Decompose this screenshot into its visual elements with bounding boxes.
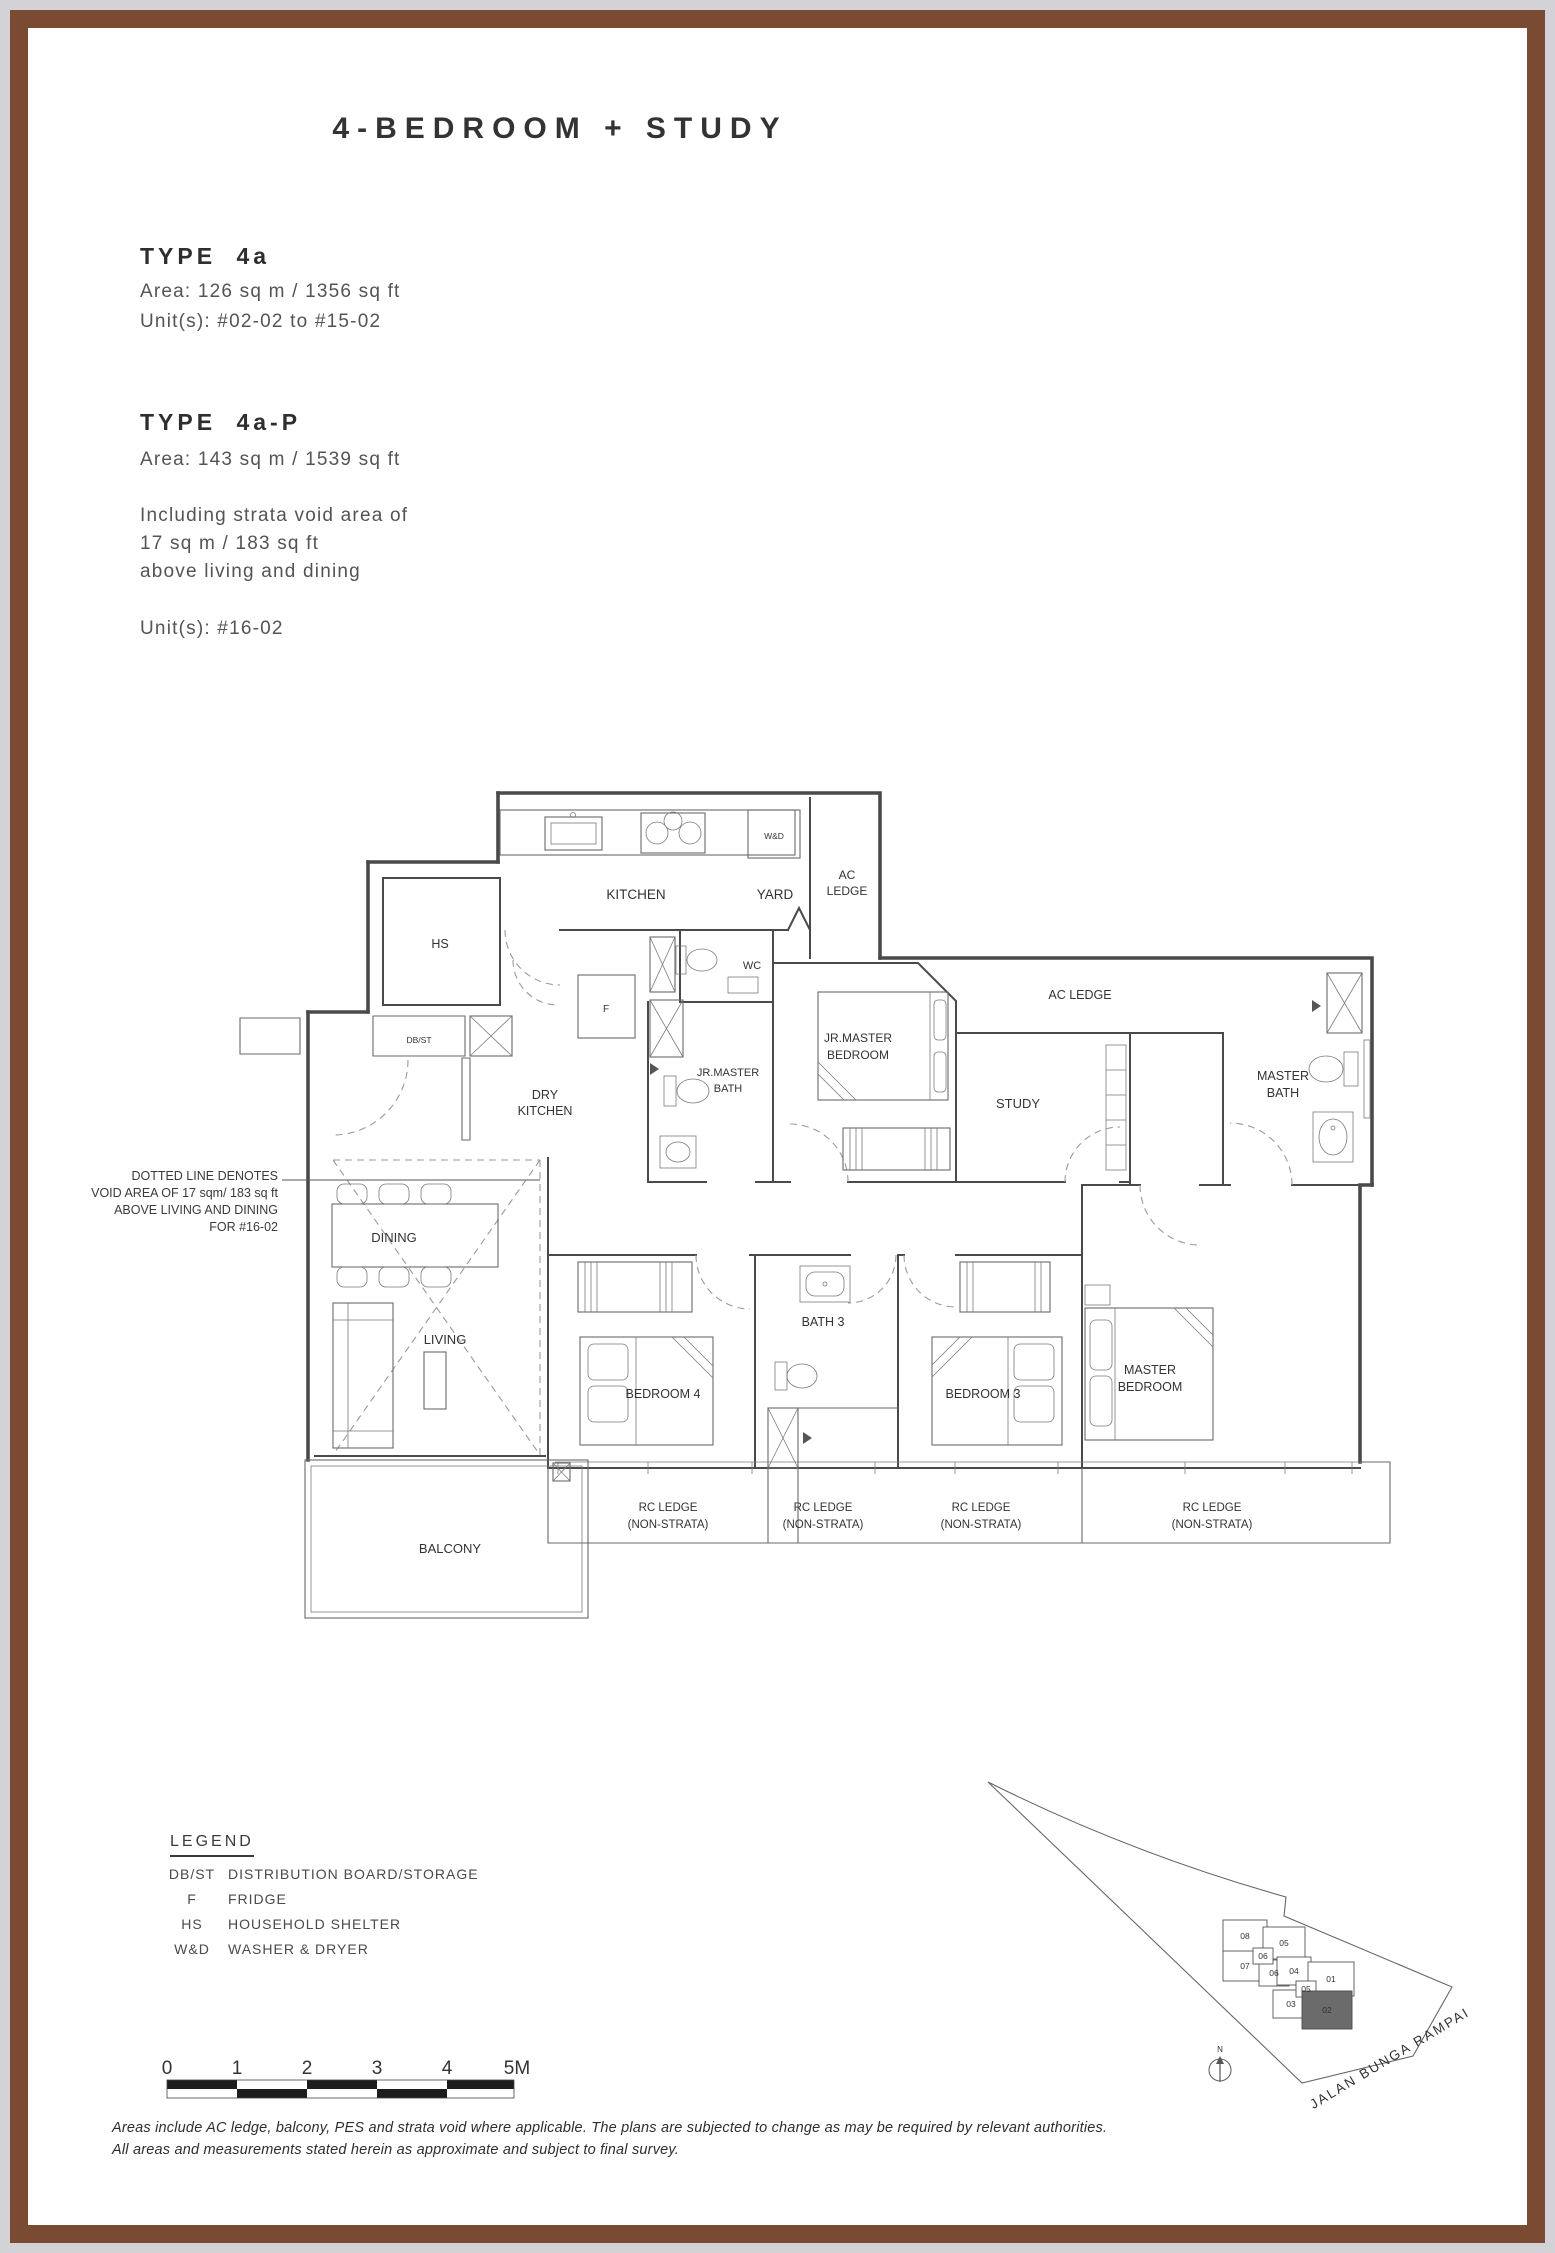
room-label-living: LIVING (424, 1332, 467, 1347)
site-block-02: 02 (1322, 2005, 1332, 2015)
legend-row-fridge: F FRIDGE (168, 1891, 479, 1907)
bathroom-fixtures (660, 946, 1358, 1390)
room-label-jr-master-bedroom-2: BEDROOM (827, 1048, 889, 1062)
site-block-04: 04 (1289, 1966, 1299, 1976)
legend-row-hs: HS HOUSEHOLD SHELTER (168, 1916, 479, 1932)
room-labels: KITCHEN YARD AC LEDGE W&D HS DB/ST DRY K… (371, 831, 1309, 1556)
site-block-05: 05 (1279, 1938, 1289, 1948)
room-label-jr-master-bath-1: JR.MASTER (697, 1067, 759, 1079)
legend-abbr: F (168, 1891, 216, 1907)
legend-abbr: W&D (168, 1941, 216, 1957)
room-label-kitchen: KITCHEN (606, 887, 665, 902)
north-arrow-icon: N (1209, 2045, 1231, 2082)
site-block-08: 08 (1240, 1931, 1250, 1941)
legend-abbr: HS (168, 1916, 216, 1932)
room-label-master-bedroom-1: MASTER (1124, 1363, 1176, 1377)
north-label: N (1217, 2045, 1223, 2054)
legend-desc: DISTRIBUTION BOARD/STORAGE (228, 1866, 479, 1882)
legend-title: LEGEND (170, 1833, 254, 1857)
legend: DB/ST DISTRIBUTION BOARD/STORAGE F FRIDG… (168, 1866, 479, 1966)
site-block-03: 03 (1286, 1999, 1296, 2009)
study-furniture (1106, 1045, 1126, 1170)
scale-tick-2: 2 (302, 2058, 313, 2079)
rc-ledge-label-4b: (NON-STRATA) (1172, 1519, 1253, 1531)
rc-ledge-and-windows (305, 1040, 1390, 1618)
room-label-wd: W&D (764, 831, 784, 841)
room-label-bedroom3: BEDROOM 3 (945, 1387, 1020, 1401)
disclaimer-line2: All areas and measurements stated herein… (112, 2142, 679, 2158)
legend-desc: HOUSEHOLD SHELTER (228, 1916, 401, 1932)
scale-bar: 0 1 2 3 4 5M (162, 2058, 530, 2098)
site-block-05b: 05 (1301, 1984, 1311, 1994)
rc-ledge-label-3a: RC LEDGE (952, 1502, 1011, 1514)
room-label-balcony: BALCONY (419, 1541, 481, 1556)
rc-ledge-label-2b: (NON-STRATA) (783, 1519, 864, 1531)
rc-ledge-label-2a: RC LEDGE (794, 1502, 853, 1514)
legend-desc: FRIDGE (228, 1891, 287, 1907)
living-dining-furniture (332, 1184, 498, 1448)
room-label-hs: HS (431, 937, 448, 951)
room-label-dry-kitchen-2: KITCHEN (518, 1104, 573, 1118)
floor-plan-interior-walls (240, 798, 1372, 1468)
legend-row-dbst: DB/ST DISTRIBUTION BOARD/STORAGE (168, 1866, 479, 1882)
scale-tick-5: 5M (504, 2058, 530, 2079)
rc-ledge-label-4a: RC LEDGE (1183, 1502, 1242, 1514)
room-label-ac-ledge-top-2: LEDGE (827, 884, 868, 898)
room-label-yard: YARD (757, 887, 794, 902)
rc-ledge-label-3b: (NON-STRATA) (941, 1519, 1022, 1531)
room-label-wc: WC (743, 960, 761, 972)
room-label-dbst: DB/ST (406, 1035, 431, 1045)
room-label-master-bath-2: BATH (1267, 1086, 1299, 1100)
room-label-bedroom4: BEDROOM 4 (625, 1387, 700, 1401)
room-label-bath3: BATH 3 (802, 1315, 845, 1329)
legend-abbr: DB/ST (168, 1866, 216, 1882)
legend-desc: WASHER & DRYER (228, 1941, 369, 1957)
disclaimer-line1: Areas include AC ledge, balcony, PES and… (112, 2120, 1107, 2136)
room-label-jr-master-bath-2: BATH (714, 1083, 743, 1095)
legend-row-wd: W&D WASHER & DRYER (168, 1941, 479, 1957)
room-label-master-bedroom-2: BEDROOM (1118, 1380, 1183, 1394)
site-block-06a: 06 (1258, 1951, 1268, 1961)
site-block-07: 07 (1240, 1961, 1250, 1971)
room-label-study: STUDY (996, 1096, 1040, 1111)
site-block-06b: 06 (1269, 1968, 1279, 1978)
rc-ledge-label-1a: RC LEDGE (639, 1502, 698, 1514)
scale-tick-3: 3 (372, 2058, 383, 2079)
room-label-dining: DINING (371, 1230, 417, 1245)
room-label-master-bath-1: MASTER (1257, 1069, 1309, 1083)
scale-tick-4: 4 (442, 2058, 453, 2079)
room-label-ac-ledge-right: AC LEDGE (1048, 988, 1111, 1002)
room-label-ac-ledge-top-1: AC (839, 868, 856, 882)
room-label-dry-kitchen-1: DRY (532, 1088, 559, 1102)
site-map: 08 05 06 07 06 04 05 01 03 02 JALAN BUNG… (988, 1782, 1472, 2112)
door-swings (333, 930, 1292, 1309)
bedroom-furniture (578, 992, 1213, 1445)
service-shafts (470, 937, 1362, 1468)
scale-tick-1: 1 (232, 2058, 243, 2079)
room-label-fridge: F (603, 1004, 609, 1015)
room-label-jr-master-bedroom-1: JR.MASTER (824, 1031, 892, 1045)
rc-ledge-label-1b: (NON-STRATA) (628, 1519, 709, 1531)
scale-tick-0: 0 (162, 2058, 173, 2079)
site-block-01: 01 (1326, 1974, 1336, 1984)
